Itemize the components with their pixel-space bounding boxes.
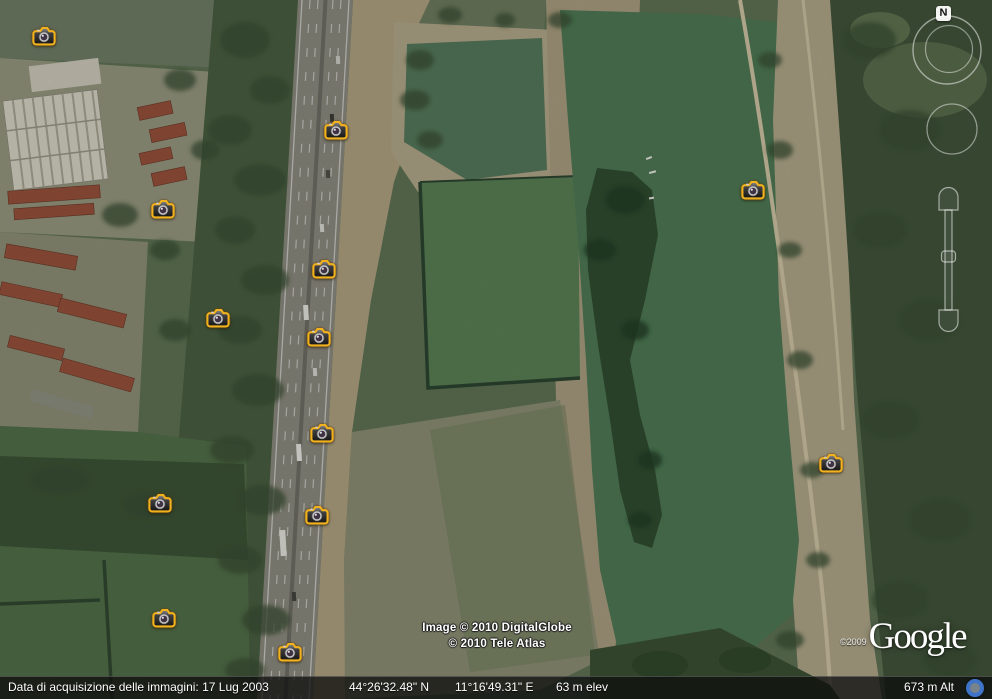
camera-icon bbox=[278, 642, 302, 662]
streaming-indicator bbox=[966, 679, 984, 697]
look-ring[interactable] bbox=[908, 12, 988, 92]
camera-icon bbox=[32, 26, 56, 46]
imagery-date: Data di acquisizione delle immagini: 17 … bbox=[8, 677, 269, 698]
zoom-in-button bbox=[939, 188, 958, 211]
latitude-readout: 44°26'32.48" N bbox=[349, 677, 429, 698]
photo-marker[interactable] bbox=[151, 199, 175, 219]
altitude-readout: 673 m Alt bbox=[904, 677, 954, 698]
photo-marker[interactable] bbox=[278, 642, 302, 662]
photo-marker[interactable] bbox=[741, 180, 765, 200]
logo-copyright: ©2009 bbox=[840, 638, 867, 647]
photo-marker[interactable] bbox=[206, 308, 230, 328]
photo-marker[interactable] bbox=[324, 120, 348, 140]
google-logo: Google bbox=[869, 620, 966, 654]
camera-icon bbox=[312, 259, 336, 279]
elevation-readout: 63 m elev bbox=[556, 677, 608, 698]
camera-icon bbox=[152, 608, 176, 628]
image-credit: Image © 2010 DigitalGlobe bbox=[377, 621, 617, 637]
zoom-slider[interactable] bbox=[935, 183, 963, 335]
map-canvas[interactable] bbox=[0, 0, 992, 699]
camera-icon bbox=[307, 327, 331, 347]
photo-marker[interactable] bbox=[312, 259, 336, 279]
photo-marker[interactable] bbox=[152, 608, 176, 628]
photo-marker[interactable] bbox=[307, 327, 331, 347]
map-credit: © 2010 Tele Atlas bbox=[377, 637, 617, 653]
image-grain bbox=[0, 0, 992, 699]
move-joystick[interactable] bbox=[924, 101, 982, 159]
camera-icon bbox=[324, 120, 348, 140]
photo-marker[interactable] bbox=[305, 505, 329, 525]
camera-icon bbox=[310, 423, 334, 443]
zoom-out-button bbox=[939, 310, 958, 332]
camera-icon bbox=[206, 308, 230, 328]
google-earth-viewport: N Image © 2010 DigitalGlobe © 2010 Tele … bbox=[0, 0, 992, 699]
camera-icon bbox=[148, 493, 172, 513]
photo-marker[interactable] bbox=[819, 453, 843, 473]
photo-marker[interactable] bbox=[148, 493, 172, 513]
camera-icon bbox=[151, 199, 175, 219]
camera-icon bbox=[741, 180, 765, 200]
google-branding: ©2009 Google bbox=[840, 620, 966, 654]
imagery-attribution: Image © 2010 DigitalGlobe © 2010 Tele At… bbox=[377, 621, 617, 652]
status-bar: Data di acquisizione delle immagini: 17 … bbox=[0, 676, 992, 699]
photo-marker[interactable] bbox=[310, 423, 334, 443]
photo-marker[interactable] bbox=[32, 26, 56, 46]
camera-icon bbox=[819, 453, 843, 473]
zoom-handle bbox=[942, 251, 956, 262]
longitude-readout: 11°16'49.31" E bbox=[455, 677, 534, 698]
camera-icon bbox=[305, 505, 329, 525]
